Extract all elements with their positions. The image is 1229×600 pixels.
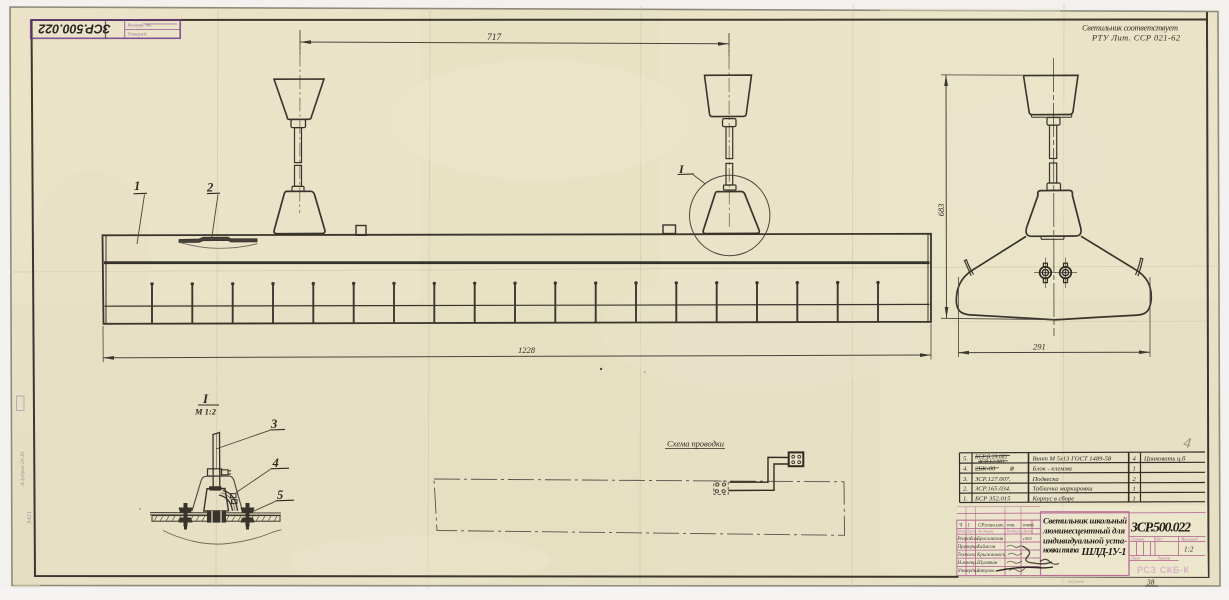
svg-text:683: 683 (936, 204, 946, 217)
svg-text:1: 1 (968, 524, 971, 529)
svg-text:Цинковать ц.б: Цинковать ц.б (1143, 456, 1186, 463)
svg-text:Вес: Вес (1157, 536, 1163, 541)
svg-text:3.: 3. (962, 476, 968, 483)
svg-text:1: 1 (1133, 486, 1136, 493)
svg-text:№ докум.: № докум. (977, 529, 994, 534)
svg-text:Утвердил: Утвердил (958, 569, 979, 574)
svg-text:Блок - клемма: Блок - клемма (1032, 466, 1073, 473)
svg-text:пчет: пчет (1023, 524, 1034, 529)
svg-text:Подвеска: Подвеска (1032, 476, 1060, 483)
svg-text:Изм: Изм (957, 529, 965, 534)
svg-text:РТУ Лит. ССР 021-62: РТУ Лит. ССР 021-62 (1091, 34, 1180, 43)
svg-text:4: 4 (272, 456, 279, 470)
svg-text:Табличка маркировки: Табличка маркировки (1033, 486, 1094, 493)
svg-text:ЗСР.165.034.: ЗСР.165.034. (975, 486, 1011, 493)
svg-text:ЗСР.500.022: ЗСР.500.022 (1130, 520, 1191, 535)
svg-text:717: 717 (487, 33, 503, 43)
svg-text:индивидуальной уста-: индивидуальной уста- (1043, 536, 1127, 546)
svg-text:5: 5 (277, 488, 283, 502)
svg-text:Лист: Лист (966, 529, 976, 534)
svg-text:БСР 352.015: БСР 352.015 (974, 496, 1011, 503)
svg-text:4.: 4. (963, 466, 968, 473)
svg-text:Масштаб: Масштаб (1180, 536, 1199, 541)
svg-text:Корпус в сборе: Корпус в сборе (1032, 496, 1075, 503)
svg-text:пчв.: пчв. (1007, 524, 1015, 529)
svg-text:Брославская: Брославская (976, 537, 1004, 542)
svg-text:1: 1 (1133, 466, 1136, 473)
svg-text:А.Зубров 20-XI: А.Зубров 20-XI (19, 450, 26, 487)
svg-text:3421: 3421 (26, 511, 33, 525)
svg-text:люминесцентный для: люминесцентный для (1042, 526, 1125, 536)
svg-text:Дата: Дата (1022, 529, 1032, 534)
svg-text:2: 2 (206, 181, 213, 195)
svg-text:Винт М 5х13 ГОСТ 1489-58: Винт М 5х13 ГОСТ 1489-58 (1033, 456, 1112, 463)
svg-text:Светильник соответствует: Светильник соответствует (1082, 24, 1178, 33)
svg-text:2БК-00: 2БК-00 (975, 466, 996, 473)
svg-text:Лист: Лист (1130, 556, 1140, 561)
svg-text:1:2: 1:2 (1184, 546, 1194, 554)
svg-text:Шулятин: Шулятин (976, 561, 998, 566)
svg-text:1.: 1. (963, 496, 968, 503)
svg-text:Листов: Листов (1156, 556, 1170, 561)
svg-text:ЗСР.127.007.: ЗСР.127.007. (975, 476, 1011, 483)
svg-text:новки типа: новки типа (1043, 546, 1079, 555)
svg-text:Утвержд.: Утвержд. (128, 32, 148, 37)
svg-text:М 1:2: М 1:2 (194, 407, 217, 417)
svg-text:3: 3 (270, 417, 277, 431)
svg-text:Подпись: Подпись (1006, 529, 1022, 534)
svg-text:Ч: Ч (959, 524, 963, 529)
svg-text:ЗСР.500.022: ЗСР.500.022 (38, 22, 110, 36)
svg-text:Разрабол.: Разрабол. (957, 537, 979, 542)
svg-text:Н.контр.: Н.контр. (957, 561, 977, 566)
svg-text:38: 38 (1146, 578, 1155, 587)
svg-text:Литера: Литера (1130, 536, 1144, 541)
svg-text:1: 1 (1133, 496, 1136, 503)
svg-text:Размерн. тч.: Размерн. тч. (127, 23, 153, 28)
svg-text:Светильник школьный: Светильник школьный (1043, 516, 1127, 526)
svg-text:Затулов.: Затулов. (977, 569, 996, 574)
svg-text:1: 1 (134, 179, 140, 193)
svg-text:с563: с563 (1023, 536, 1033, 541)
svg-text:291: 291 (1033, 342, 1046, 352)
svg-text:I: I (202, 391, 209, 406)
svg-text:ЗСР.12.081: ЗСР.12.081 (978, 460, 1005, 466)
svg-text:2.: 2. (963, 486, 968, 493)
svg-text:5.: 5. (963, 456, 968, 463)
svg-text:РСЗ СКБ-К: РСЗ СКБ-К (1137, 565, 1190, 575)
svg-text:Хаймсон: Хаймсон (976, 544, 996, 550)
svg-text:1228: 1228 (518, 345, 536, 355)
svg-text:ШЛД-1У-1: ШЛД-1У-1 (1081, 547, 1127, 558)
svg-text:Проверил: Проверил (957, 545, 978, 550)
svg-text:СР.план.изв.: СР.план.изв. (978, 524, 1004, 529)
svg-text:изучено: изучено (1068, 580, 1085, 585)
svg-text:Технолог: Технолог (958, 553, 977, 558)
svg-text:Крыжановск.: Крыжановск. (976, 553, 1006, 558)
svg-text:Схема проводки: Схема проводки (667, 439, 724, 449)
